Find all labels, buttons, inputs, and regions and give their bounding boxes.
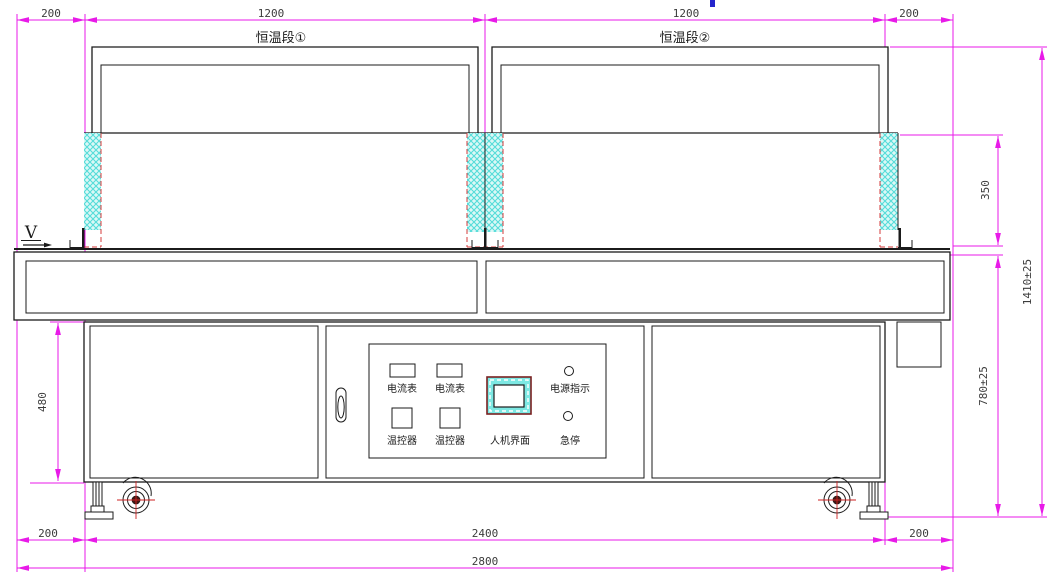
flow-direction-arrowhead (44, 243, 52, 248)
dim-top-section2-width: 1200 (673, 7, 700, 20)
blue-artifact-mark (710, 0, 715, 7)
band-panel-left (26, 261, 477, 313)
dim-top-left-offset: 200 (41, 7, 61, 20)
dim-left-cabinet-height: 480 (36, 392, 49, 412)
curtain-column-left (84, 133, 101, 230)
machine-side-view-drawing: 电流表 电流表 温控器 温控器 人机界面 电源指示 急停 (0, 0, 1057, 575)
curtain-column-right (880, 133, 898, 230)
caster-right (818, 477, 856, 519)
dim-top-section1-width: 1200 (258, 7, 285, 20)
dim-right-table-height: 780±25 (977, 366, 990, 406)
dim-bottom-cabinet-width: 2400 (472, 527, 499, 540)
hmi-screen (487, 377, 531, 414)
leveling-foot-left (85, 482, 113, 519)
caster-left (117, 477, 155, 519)
conveyor-band (14, 252, 950, 320)
hood-section-1 (92, 47, 478, 133)
dim-bottom-total-width: 2800 (472, 555, 499, 568)
engineering-drawing-canvas: 电流表 电流表 温控器 温控器 人机界面 电源指示 急停 (0, 0, 1057, 575)
band-panel-right (486, 261, 944, 313)
section2-label: 恒温段② (660, 31, 711, 46)
curtain-foot-right (898, 228, 912, 249)
dim-bottom-left-offset: 200 (38, 527, 58, 540)
right-side-box (897, 322, 941, 367)
dim-right-total-height: 1410±25 (1021, 259, 1034, 305)
cabinet-door-left (90, 326, 318, 478)
hmi-label: 人机界面 (490, 434, 530, 447)
leveling-foot-right (860, 482, 888, 519)
emergency-stop-label: 急停 (560, 434, 580, 447)
temp-controller-left-label: 温控器 (387, 434, 417, 447)
power-indicator-label: 电源指示 (550, 382, 590, 395)
cabinet-door-right (652, 326, 880, 478)
temp-controller-right-label: 温控器 (435, 434, 465, 447)
curtain-foot-left (70, 228, 85, 249)
section1-label: 恒温段① (256, 31, 307, 46)
hood-section-2 (492, 47, 888, 133)
dim-right-hood-height: 350 (979, 180, 992, 200)
ammeter-right-label: 电流表 (435, 382, 465, 395)
curtain-columns (70, 133, 912, 249)
dim-bottom-right-offset: 200 (909, 527, 929, 540)
dim-top-right-offset: 200 (899, 7, 919, 20)
ammeter-left-label: 电流表 (387, 382, 417, 395)
flow-direction-marker: V (21, 223, 52, 247)
control-panel: 电流表 电流表 温控器 温控器 人机界面 电源指示 急停 (369, 344, 606, 458)
